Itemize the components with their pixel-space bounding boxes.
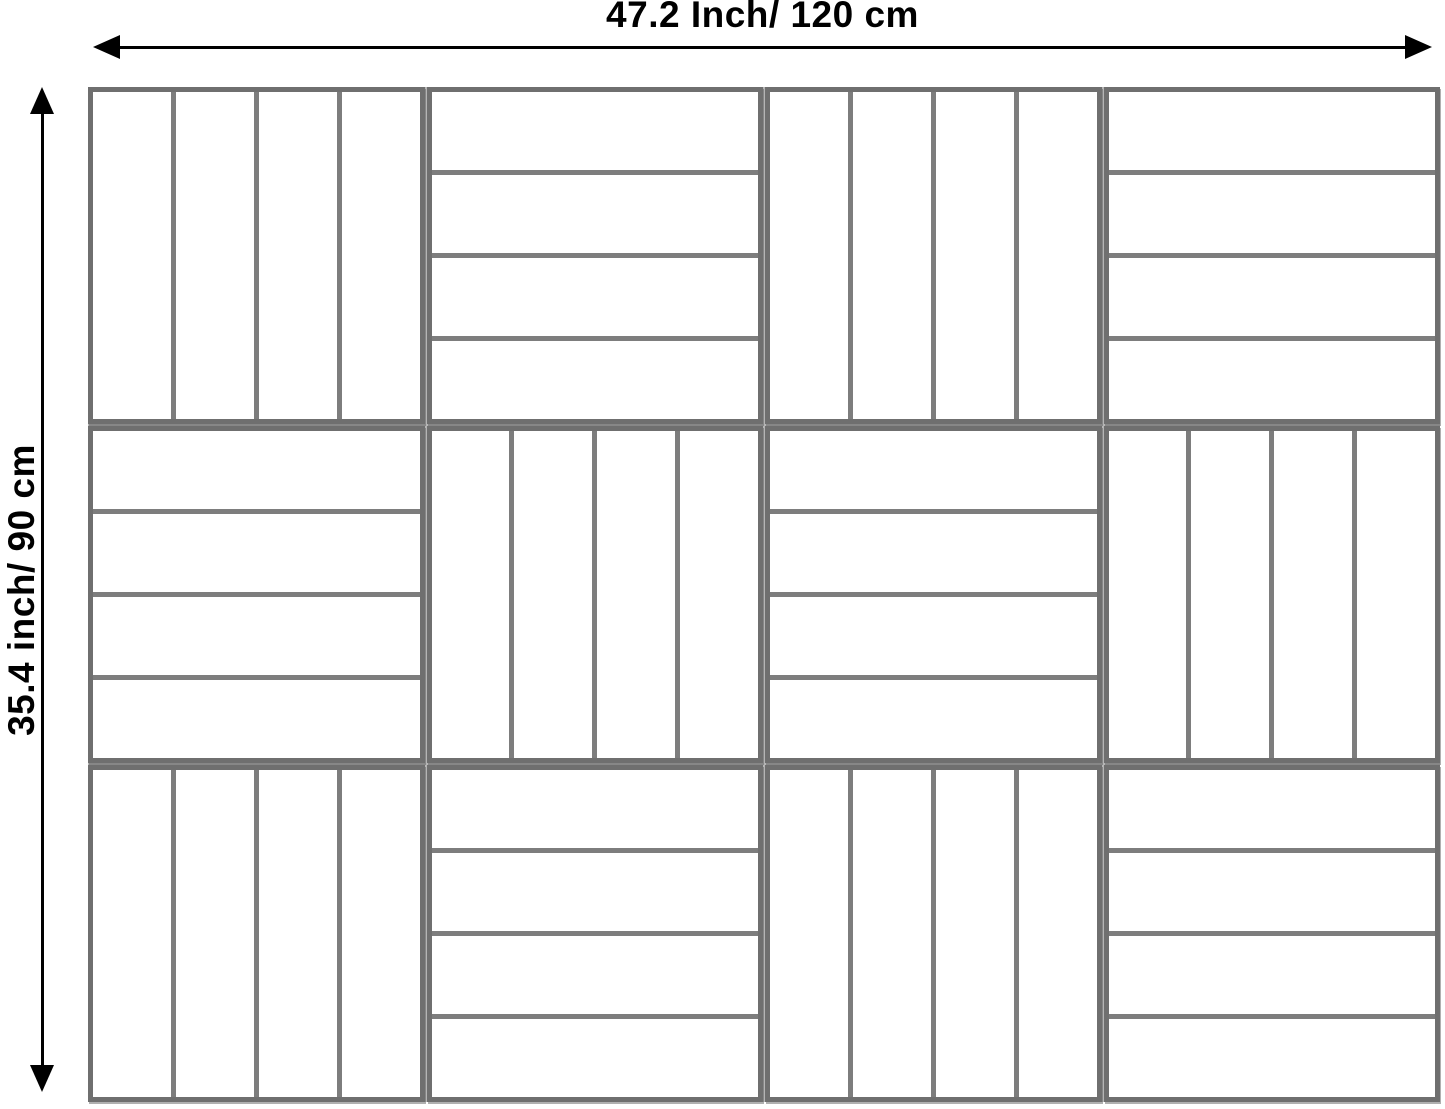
tile-slat — [1352, 431, 1435, 758]
tile-slat — [93, 92, 171, 419]
tile-slat — [592, 431, 675, 758]
deck-tile-horizontal-slats — [88, 426, 425, 763]
tile-slat — [770, 509, 1097, 592]
width-dimension-label: 47.2 Inch/ 120 cm — [93, 0, 1432, 36]
deck-tile-dimension-diagram: 47.2 Inch/ 120 cm 35.4 inch/ 90 cm — [0, 0, 1445, 1109]
deck-tile-horizontal-slats — [765, 426, 1102, 763]
tile-slat — [432, 92, 759, 170]
tile-slat — [93, 675, 420, 758]
tile-slat — [171, 770, 254, 1097]
tile-slat — [254, 770, 337, 1097]
tile-grid — [88, 87, 1440, 1102]
tile-slat — [675, 431, 758, 758]
deck-tile-horizontal-slats — [427, 765, 764, 1102]
tile-slat — [1109, 1014, 1436, 1097]
tile-slat — [1109, 431, 1187, 758]
tile-slat — [1109, 848, 1436, 931]
tile-slat — [93, 509, 420, 592]
tile-slat — [337, 92, 420, 419]
tile-slat — [1109, 336, 1436, 419]
tile-slat — [432, 770, 759, 848]
tile-slat — [432, 336, 759, 419]
arrowhead-down-icon — [30, 1065, 54, 1092]
tile-slat — [93, 592, 420, 675]
tile-slat — [171, 92, 254, 419]
tile-slat — [432, 931, 759, 1014]
tile-slat — [770, 770, 848, 1097]
tile-slat — [770, 592, 1097, 675]
tile-slat — [509, 431, 592, 758]
tile-slat — [432, 1014, 759, 1097]
deck-tile-horizontal-slats — [1104, 87, 1441, 424]
tile-slat — [770, 92, 848, 419]
tile-slat — [1109, 931, 1436, 1014]
tile-slat — [337, 770, 420, 1097]
tile-slat — [848, 770, 931, 1097]
tile-slat — [1109, 170, 1436, 253]
tile-slat — [1109, 770, 1436, 848]
tile-slat — [1186, 431, 1269, 758]
width-dimension-arrow — [93, 34, 1432, 60]
tile-slat — [770, 431, 1097, 509]
arrow-line — [41, 114, 44, 1065]
tile-slat — [1109, 92, 1436, 170]
tile-slat — [254, 92, 337, 419]
height-dimension-arrow — [29, 87, 55, 1092]
tile-slat — [1014, 770, 1097, 1097]
tile-slat — [93, 431, 420, 509]
tile-slat — [931, 92, 1014, 419]
tile-slat — [1109, 253, 1436, 336]
arrow-line — [120, 46, 1405, 49]
tile-slat — [848, 92, 931, 419]
arrowhead-up-icon — [30, 87, 54, 114]
tile-slat — [93, 770, 171, 1097]
deck-tile-vertical-slats — [427, 426, 764, 763]
tile-slat — [931, 770, 1014, 1097]
arrowhead-right-icon — [1405, 35, 1432, 59]
tile-slat — [432, 431, 510, 758]
deck-tile-horizontal-slats — [427, 87, 764, 424]
tile-slat — [1269, 431, 1352, 758]
deck-tile-horizontal-slats — [1104, 765, 1441, 1102]
deck-tile-vertical-slats — [765, 87, 1102, 424]
deck-tile-vertical-slats — [765, 765, 1102, 1102]
tile-slat — [1014, 92, 1097, 419]
tile-slat — [770, 675, 1097, 758]
tile-slat — [432, 848, 759, 931]
deck-tile-vertical-slats — [88, 765, 425, 1102]
deck-tile-vertical-slats — [88, 87, 425, 424]
tile-slat — [432, 253, 759, 336]
deck-tile-vertical-slats — [1104, 426, 1441, 763]
tile-slat — [432, 170, 759, 253]
arrowhead-left-icon — [93, 35, 120, 59]
